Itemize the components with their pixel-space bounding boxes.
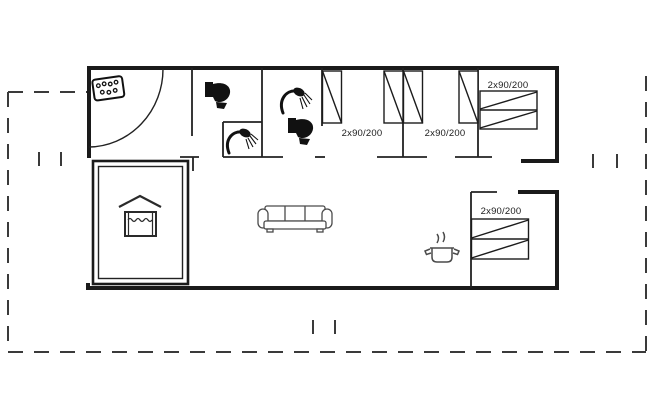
pot-steam-2 — [443, 232, 445, 242]
pot-handle-right — [453, 249, 459, 255]
shower-head — [292, 86, 306, 98]
bed-bedroom2-right — [459, 71, 478, 123]
bed-label-bedroom3: 2x90/200 — [488, 80, 529, 91]
shower-icon — [227, 127, 258, 153]
pool-room — [93, 161, 188, 284]
toilet-icon — [205, 82, 230, 109]
pool-icon-water-wave — [128, 219, 152, 222]
bed-label-bedroom2: 2x90/200 — [425, 128, 466, 139]
pool-room-outer-wall — [93, 161, 188, 284]
shower-head — [238, 127, 252, 139]
shower-hose — [281, 91, 296, 113]
toilet-base — [299, 138, 310, 145]
sofa-foot-left — [267, 229, 273, 232]
pool-room-inner-wall — [99, 167, 183, 279]
whirlpool-icon-tub — [92, 76, 125, 101]
shower-hose — [227, 132, 242, 153]
whirlpool-icon — [92, 76, 125, 101]
pool-icon-roof — [119, 196, 161, 207]
bed-label-bedroom4: 2x90/200 — [481, 206, 522, 217]
pool-icon-basin — [125, 212, 156, 236]
sofa-back — [265, 206, 325, 221]
floor-plan-canvas: 2x90/200 2x90/200 2x90/200 2x90/200 — [0, 0, 650, 420]
pool-icon — [119, 196, 161, 236]
whirlpool-icon-bubbles — [96, 80, 119, 95]
pot-body — [432, 248, 452, 262]
toilet-bowl — [296, 119, 313, 138]
bunk-bed-bedroom3 — [480, 91, 537, 129]
bed-bedroom2-left — [404, 71, 423, 123]
cooking-pot-icon — [425, 232, 459, 262]
bunk-bed-bedroom4 — [472, 219, 529, 259]
bed-bedroom1-left — [323, 71, 342, 123]
bed-label-bedroom1: 2x90/200 — [342, 128, 383, 139]
sofa-foot-right — [317, 229, 323, 232]
pool-icon-basin-walls — [129, 212, 153, 236]
shower-icon — [281, 86, 312, 113]
sofa-icon — [258, 206, 332, 232]
pot-steam-1 — [437, 234, 439, 243]
boundary-opening-ticks — [39, 152, 617, 334]
sofa-seat — [264, 221, 326, 229]
pot-handle-left — [425, 249, 431, 255]
toilet-base — [216, 102, 227, 109]
toilet-tank — [288, 118, 296, 133]
beds — [323, 71, 538, 259]
toilet-bowl — [213, 83, 230, 102]
toilet-icon — [288, 118, 313, 145]
entry-door-swing-arc — [89, 69, 163, 147]
floor-plan-screenshot: 2x90/200 2x90/200 2x90/200 2x90/200 — [0, 0, 650, 420]
toilet-tank — [205, 82, 213, 97]
bed-bedroom1-right — [384, 71, 403, 123]
